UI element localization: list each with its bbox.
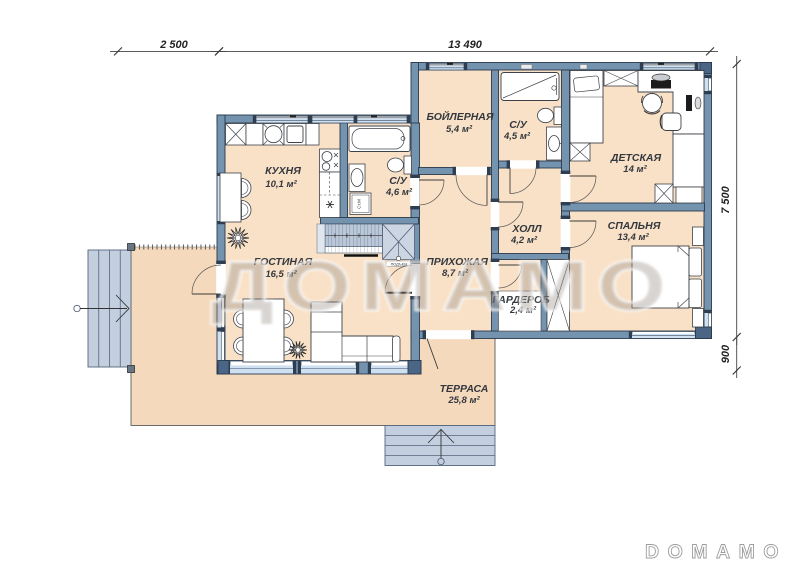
svg-text:С/У: С/У — [389, 175, 408, 187]
svg-text:4,6 м²: 4,6 м² — [385, 187, 413, 198]
svg-text:DOMAMO: DOMAMO — [645, 541, 787, 563]
svg-text:ТЕРРАСА: ТЕРРАСА — [440, 383, 489, 395]
svg-text:Ст.М: Ст.М — [357, 199, 362, 209]
svg-text:4,2 м²: 4,2 м² — [510, 235, 538, 246]
svg-text:7 500: 7 500 — [720, 185, 732, 213]
svg-text:КУХНЯ: КУХНЯ — [265, 165, 301, 177]
svg-text:13 490: 13 490 — [448, 39, 483, 51]
svg-text:13,4 м²: 13,4 м² — [617, 232, 649, 243]
svg-text:БОЙЛЕРНАЯ: БОЙЛЕРНАЯ — [426, 110, 493, 123]
svg-text:10,1 м²: 10,1 м² — [265, 179, 297, 190]
svg-text:ХОЛЛ: ХОЛЛ — [511, 223, 542, 235]
svg-text:900: 900 — [720, 344, 732, 363]
svg-text:14 м²: 14 м² — [623, 164, 647, 175]
svg-text:25,8 м²: 25,8 м² — [447, 395, 480, 406]
svg-text:ДОМАМО: ДОМАМО — [211, 246, 675, 325]
svg-text:2 500: 2 500 — [159, 39, 188, 51]
svg-text:С/У: С/У — [509, 119, 528, 131]
svg-text:СПАЛЬНЯ: СПАЛЬНЯ — [608, 220, 661, 232]
svg-text:ДЕТСКАЯ: ДЕТСКАЯ — [610, 152, 662, 164]
svg-text:5,4 м²: 5,4 м² — [446, 124, 473, 135]
svg-text:4,5 м²: 4,5 м² — [503, 131, 531, 142]
